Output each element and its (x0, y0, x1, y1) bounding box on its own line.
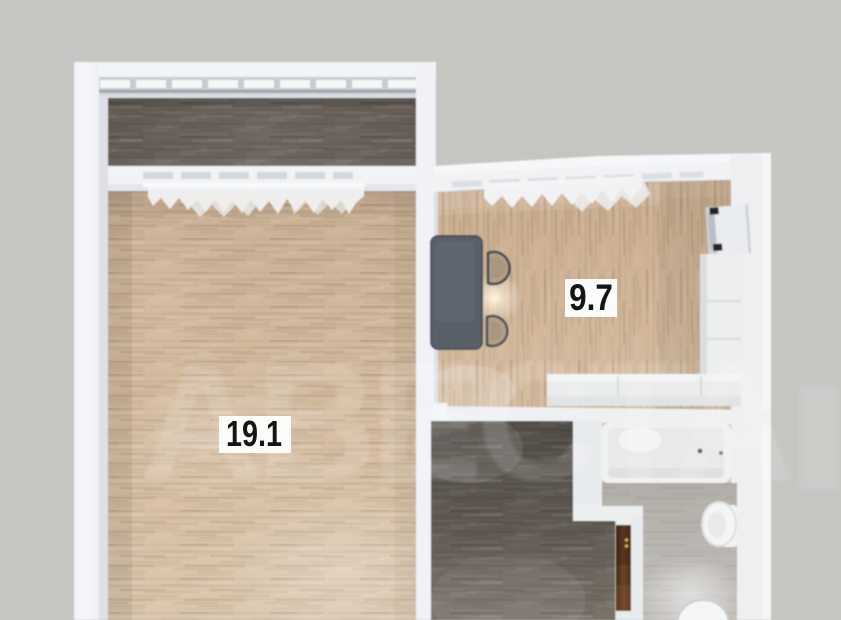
svg-text:19.1: 19.1 (226, 413, 282, 454)
svg-text:9.7: 9.7 (569, 278, 613, 319)
